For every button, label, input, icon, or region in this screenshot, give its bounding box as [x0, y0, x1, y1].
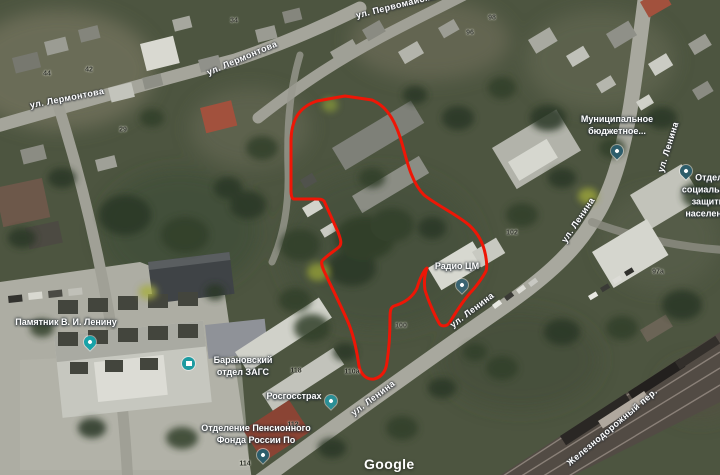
poi-label[interactable]: Муниципальное бюджетное... [581, 113, 653, 137]
poi-label[interactable]: Барановский отдел ЗАГС [214, 354, 273, 378]
map-viewport: ул. Лермонтоваул. Лермонтоваул. Первомай… [0, 0, 720, 475]
poi-label[interactable]: Радио ЦМ [435, 260, 479, 272]
satellite-map-canvas[interactable]: ул. Лермонтоваул. Лермонтоваул. Первомай… [0, 0, 720, 475]
poi-label[interactable]: Памятник В. И. Ленину [15, 316, 116, 328]
map-pin-icon[interactable] [182, 357, 195, 370]
poi-label[interactable]: Росгосстрах [266, 390, 321, 402]
poi-label[interactable]: Отдел социальной защиты населения [682, 172, 720, 221]
google-attribution-logo[interactable]: Google [364, 456, 415, 472]
satellite-imagery [0, 0, 720, 475]
poi-label[interactable]: Отделение Пенсионного Фонда России По [201, 422, 311, 446]
